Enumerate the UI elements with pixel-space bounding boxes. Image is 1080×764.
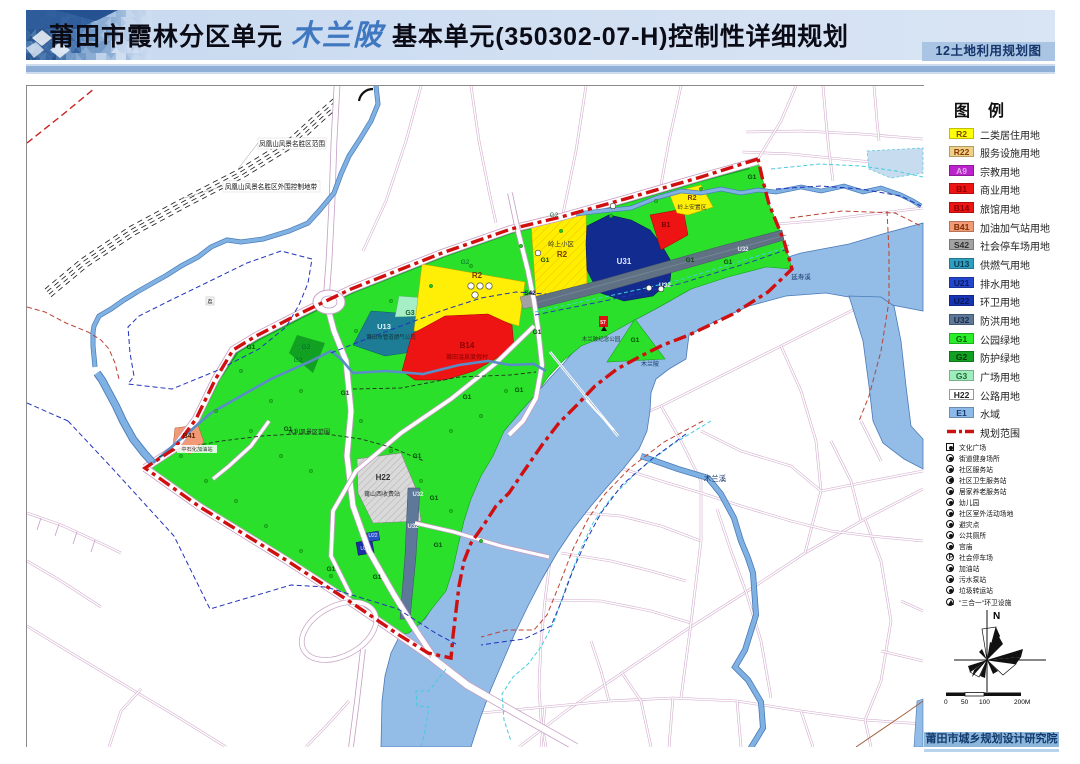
svg-text:荔: 荔 bbox=[207, 298, 213, 306]
svg-text:57: 57 bbox=[600, 320, 606, 326]
svg-text:50: 50 bbox=[961, 699, 969, 706]
svg-text:U32: U32 bbox=[412, 492, 424, 498]
svg-text:G2: G2 bbox=[461, 259, 470, 266]
svg-text:G2: G2 bbox=[294, 357, 303, 364]
svg-text:200M: 200M bbox=[1014, 699, 1030, 706]
svg-text:B14: B14 bbox=[460, 341, 475, 350]
svg-text:G1: G1 bbox=[533, 329, 542, 336]
svg-text:U31: U31 bbox=[617, 257, 632, 266]
svg-text:U21: U21 bbox=[360, 546, 369, 552]
svg-text:G1: G1 bbox=[748, 174, 757, 181]
svg-text:B41: B41 bbox=[183, 433, 196, 440]
svg-text:G1: G1 bbox=[430, 495, 439, 502]
svg-text:U13: U13 bbox=[377, 322, 391, 331]
svg-text:U22: U22 bbox=[368, 533, 377, 539]
svg-text:凤凰山风景名胜区范围: 凤凰山风景名胜区范围 bbox=[259, 139, 325, 148]
svg-text:G1: G1 bbox=[515, 387, 524, 394]
svg-text:S42: S42 bbox=[524, 290, 536, 297]
svg-text:G1: G1 bbox=[327, 566, 336, 573]
svg-text:B1: B1 bbox=[662, 222, 671, 229]
svg-text:G1: G1 bbox=[686, 257, 695, 264]
svg-text:G1: G1 bbox=[247, 344, 256, 351]
svg-text:G1: G1 bbox=[724, 259, 733, 266]
svg-text:延寿溪: 延寿溪 bbox=[791, 272, 811, 281]
svg-text:G2: G2 bbox=[302, 344, 311, 351]
svg-text:凤凰山风景名胜区外围控制地带: 凤凰山风景名胜区外围控制地带 bbox=[225, 182, 318, 191]
svg-text:G1: G1 bbox=[373, 574, 382, 581]
svg-text:莆田市管道燃气公司: 莆田市管道燃气公司 bbox=[366, 333, 416, 341]
svg-text:水利风景区范围: 水利风景区范围 bbox=[288, 428, 330, 436]
svg-text:木兰溪: 木兰溪 bbox=[704, 473, 727, 483]
svg-text:R2: R2 bbox=[472, 271, 483, 280]
svg-text:莆山西收费站: 莆山西收费站 bbox=[364, 490, 400, 498]
svg-text:H22: H22 bbox=[376, 473, 391, 482]
svg-text:G1: G1 bbox=[434, 542, 443, 549]
svg-text:木兰陂纪念公园: 木兰陂纪念公园 bbox=[582, 335, 621, 343]
svg-text:U32: U32 bbox=[737, 247, 749, 253]
svg-text:岭上安置区: 岭上安置区 bbox=[678, 203, 707, 211]
svg-text:G2: G2 bbox=[550, 212, 559, 219]
svg-text:岭上小区: 岭上小区 bbox=[548, 239, 575, 248]
svg-text:G1: G1 bbox=[341, 390, 350, 397]
svg-text:100: 100 bbox=[979, 699, 990, 706]
svg-text:G1: G1 bbox=[541, 257, 550, 264]
svg-text:G1: G1 bbox=[413, 453, 422, 460]
svg-text:莆田温泉度假村: 莆田温泉度假村 bbox=[446, 353, 488, 361]
svg-text:中石化加油站: 中石化加油站 bbox=[181, 445, 212, 453]
svg-text:U32: U32 bbox=[407, 524, 419, 530]
svg-text:G3: G3 bbox=[405, 310, 414, 317]
svg-text:G1: G1 bbox=[631, 337, 640, 344]
svg-text:N: N bbox=[993, 611, 1000, 622]
svg-text:R2: R2 bbox=[557, 250, 568, 259]
svg-text:0: 0 bbox=[944, 699, 948, 706]
svg-text:木兰陂: 木兰陂 bbox=[641, 360, 659, 368]
svg-text:G1: G1 bbox=[463, 394, 472, 401]
svg-text:R2: R2 bbox=[688, 195, 697, 202]
